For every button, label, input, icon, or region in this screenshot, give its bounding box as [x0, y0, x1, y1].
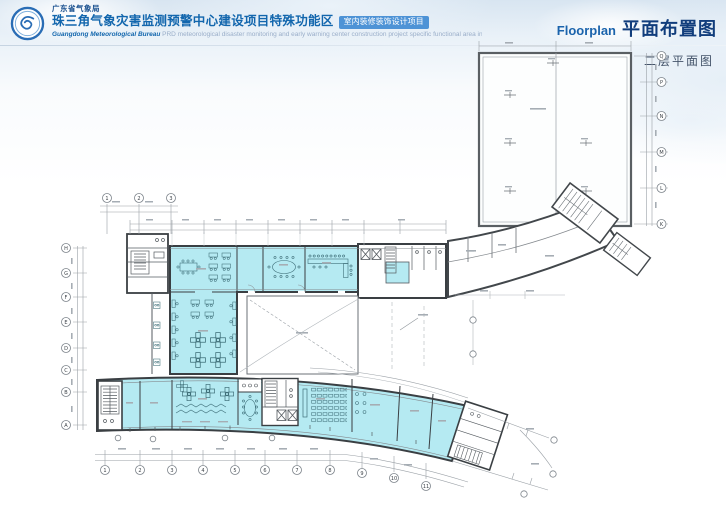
lower-stair-left [98, 381, 122, 430]
terrace-dim-chain-right: Q P N M L K [634, 52, 668, 229]
side-corridor [152, 293, 160, 374]
void-room [247, 296, 358, 374]
grid-bubble: 9 [358, 469, 367, 478]
svg-text:B: B [64, 390, 68, 396]
svg-text:2: 2 [138, 468, 141, 474]
dim-chain-left: H G F E D C B A [62, 244, 88, 431]
svg-text:L: L [660, 186, 663, 192]
svg-text:C: C [64, 368, 68, 374]
svg-text:D: D [64, 346, 68, 352]
svg-text:5: 5 [233, 468, 236, 474]
grid-bubble: 11 [422, 482, 431, 491]
dim-chain-upper-left: 1 2 3 [100, 194, 178, 235]
grid-bubble: 8 [326, 466, 335, 475]
svg-text:Q: Q [660, 54, 664, 60]
grid-bubble: 5 [231, 466, 240, 475]
grid-bubble: 10 [390, 474, 399, 483]
roof-terrace-outline [479, 41, 631, 226]
grid-bubble: F [62, 293, 71, 302]
grid-bubble: 3 [168, 466, 177, 475]
grid-bubble [550, 471, 556, 477]
svg-text:8: 8 [328, 468, 331, 474]
grid-bubble: D [62, 344, 71, 353]
svg-text:M: M [659, 150, 663, 156]
grid-bubble: 4 [199, 466, 208, 475]
svg-text:A: A [64, 423, 68, 429]
svg-text:9: 9 [360, 471, 363, 477]
svg-text:E: E [64, 320, 67, 326]
grid-bubble: 6 [261, 466, 270, 475]
grid-bubble [521, 491, 527, 497]
grid-bubble: M [657, 148, 666, 157]
core-lower [262, 379, 298, 426]
svg-text:1: 1 [105, 196, 108, 202]
grid-bubble: 3 [167, 194, 176, 203]
grid-bubble [551, 437, 557, 443]
grid-bubble: A [62, 421, 71, 430]
grid-bubble: 1 [101, 466, 110, 475]
grid-bubble: 7 [293, 466, 302, 475]
svg-text:3: 3 [169, 196, 172, 202]
grid-bubble: N [657, 112, 666, 121]
vip-room-seats [354, 391, 367, 417]
dim-chain-top [130, 219, 446, 246]
grid-bubble [222, 435, 228, 441]
svg-text:F: F [65, 295, 68, 301]
grid-bubble: H [62, 244, 71, 253]
grid-bubble [470, 317, 476, 323]
grid-bubble: G [62, 269, 71, 278]
grid-bubble [115, 435, 121, 441]
svg-text:G: G [64, 271, 68, 277]
svg-text:3: 3 [170, 468, 173, 474]
grid-bubble: E [62, 318, 71, 327]
grid-bubble: B [62, 388, 71, 397]
svg-text:N: N [660, 114, 664, 120]
svg-text:P: P [660, 80, 663, 86]
grid-bubble: 2 [135, 194, 144, 203]
grid-bubble: C [62, 366, 71, 375]
svg-text:11: 11 [423, 484, 429, 490]
floorplan-canvas: Q P N M L K [0, 0, 726, 513]
grid-bubble [150, 436, 156, 442]
upper-stair-block [127, 234, 168, 293]
grid-bubble: K [657, 220, 666, 229]
svg-text:1: 1 [103, 468, 106, 474]
svg-text:4: 4 [201, 468, 204, 474]
grid-bubble: 2 [136, 466, 145, 475]
grid-bubble [269, 435, 275, 441]
svg-text:10: 10 [391, 476, 397, 482]
svg-text:6: 6 [263, 468, 266, 474]
grid-bubble: Q [657, 52, 666, 61]
svg-text:2: 2 [137, 196, 140, 202]
grid-bubble: P [657, 78, 666, 87]
svg-text:7: 7 [295, 468, 298, 474]
grid-bubble: 1 [103, 194, 112, 203]
grid-bubble: L [657, 184, 666, 193]
presentation-slide: 广东省气象局 珠三角气象灾害监测预警中心建设项目特殊功能区 室内装修装饰设计项目… [0, 0, 726, 513]
grid-bubble [470, 351, 476, 357]
svg-text:H: H [64, 246, 68, 252]
